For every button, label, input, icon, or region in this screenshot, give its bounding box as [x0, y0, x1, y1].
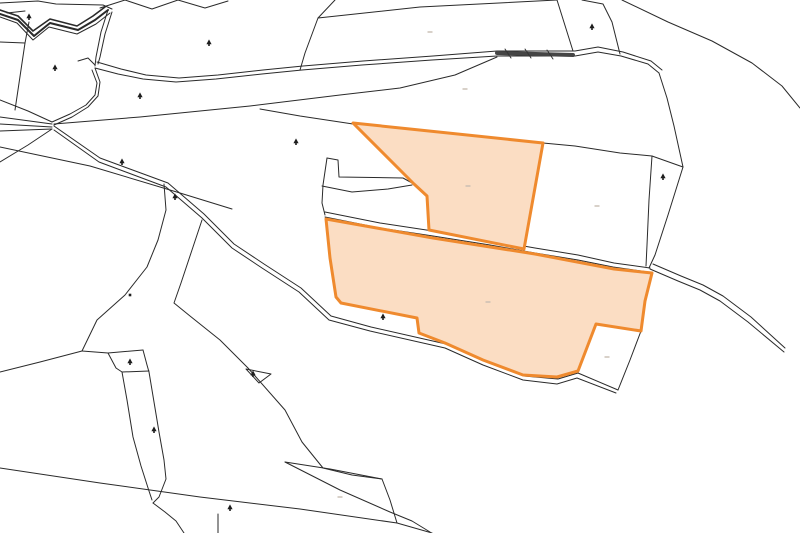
- road-b-upper: [653, 264, 785, 348]
- field-track-north-edge: [0, 1, 112, 9]
- point-marker: [129, 294, 132, 297]
- road-bundle-line-3: [0, 13, 110, 40]
- parcel-label-mark: [338, 496, 343, 497]
- tree-icon: [127, 358, 132, 365]
- bottom-second-line: [285, 462, 430, 532]
- strip-cross-tick: [122, 371, 149, 372]
- parcel-label-mark: [463, 88, 468, 89]
- triangle-parcel: [246, 369, 271, 383]
- north-boundary-of-east-parcel: [543, 143, 683, 167]
- southwest-spur: [0, 351, 82, 372]
- boundary-to-upper-parcel-corner: [260, 109, 353, 124]
- bottom-long-line: [0, 468, 432, 533]
- map-viewport[interactable]: [0, 0, 800, 533]
- tree-icon: [119, 158, 124, 165]
- west-line-a: [0, 100, 52, 122]
- top-zigzag: [100, 0, 228, 9]
- parcel-label-mark: [486, 301, 491, 302]
- strip-tail: [153, 503, 184, 533]
- parcel-label-mark: [605, 356, 610, 357]
- top-diagonal: [318, 0, 557, 18]
- road-b-lower: [650, 269, 784, 352]
- claw-hook: [78, 58, 95, 65]
- wedge-left-line: [646, 156, 652, 266]
- long-boundary-east: [54, 57, 497, 124]
- pocket-line: [322, 185, 412, 192]
- cross-line-southwest: [0, 147, 232, 209]
- west-road-lower: [0, 124, 52, 127]
- tree-icon: [227, 504, 232, 511]
- parcel-label-mark: [466, 185, 471, 186]
- northeast-long-curve: [622, 0, 800, 108]
- parcel-label-mark: [428, 31, 433, 32]
- top-parcel-left-edge: [557, 0, 573, 51]
- top-parcel-right-edge: [582, 0, 620, 54]
- tree-icon: [206, 39, 211, 46]
- notch-right-boundary: [618, 331, 641, 390]
- parcel-tick: [7, 11, 25, 13]
- strip-connector: [82, 350, 143, 353]
- tree-icon: [52, 64, 57, 71]
- top-boundary-west: [300, 0, 335, 70]
- strip-right-edge: [143, 350, 166, 503]
- west-line-b: [0, 129, 52, 131]
- road-c-upper: [97, 47, 662, 78]
- south-quad-right: [382, 479, 397, 523]
- highlighted-parcels-layer: [326, 123, 652, 377]
- central-descender: [82, 184, 166, 351]
- branch-road-2: [52, 70, 97, 122]
- west-line-c: [0, 129, 52, 162]
- map-canvas[interactable]: [0, 0, 800, 533]
- tree-icon: [293, 138, 298, 145]
- parcel-label-mark: [595, 205, 600, 206]
- road-corner-descender: [659, 73, 683, 167]
- tree-icon: [151, 426, 156, 433]
- tree-icon: [26, 13, 31, 20]
- tree-icon: [589, 23, 594, 30]
- west-quad-boundary: [0, 42, 25, 110]
- wedge-right-line: [649, 167, 683, 268]
- tree-icon: [137, 92, 142, 99]
- strip-left-edge: [108, 353, 152, 500]
- tree-icon: [380, 313, 385, 320]
- tree-icon: [660, 173, 665, 180]
